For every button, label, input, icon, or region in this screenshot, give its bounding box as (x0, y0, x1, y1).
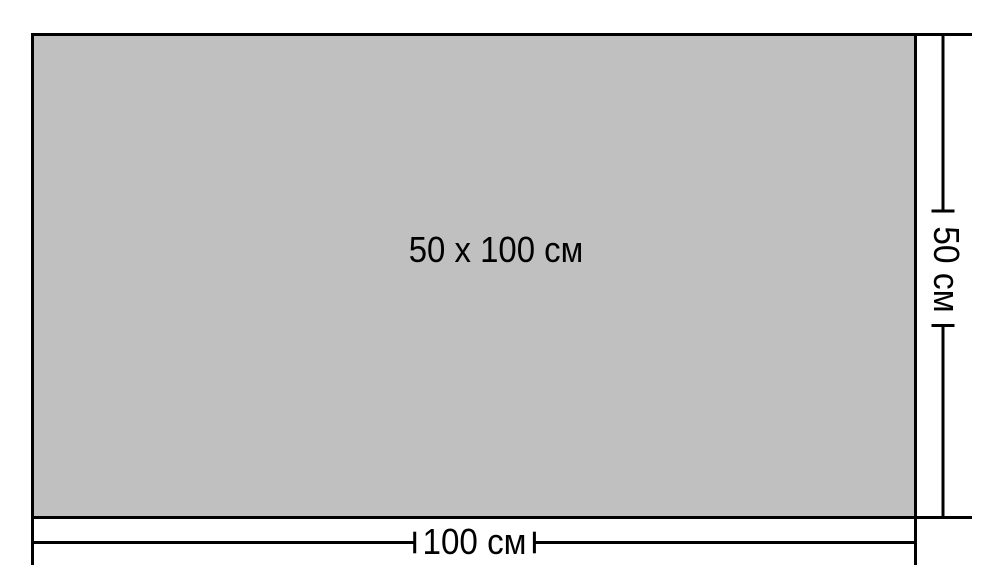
svg-text:100 см: 100 см (423, 521, 527, 562)
svg-text:50 x 100 см: 50 x 100 см (409, 229, 584, 270)
svg-text:50 см: 50 см (926, 226, 967, 313)
